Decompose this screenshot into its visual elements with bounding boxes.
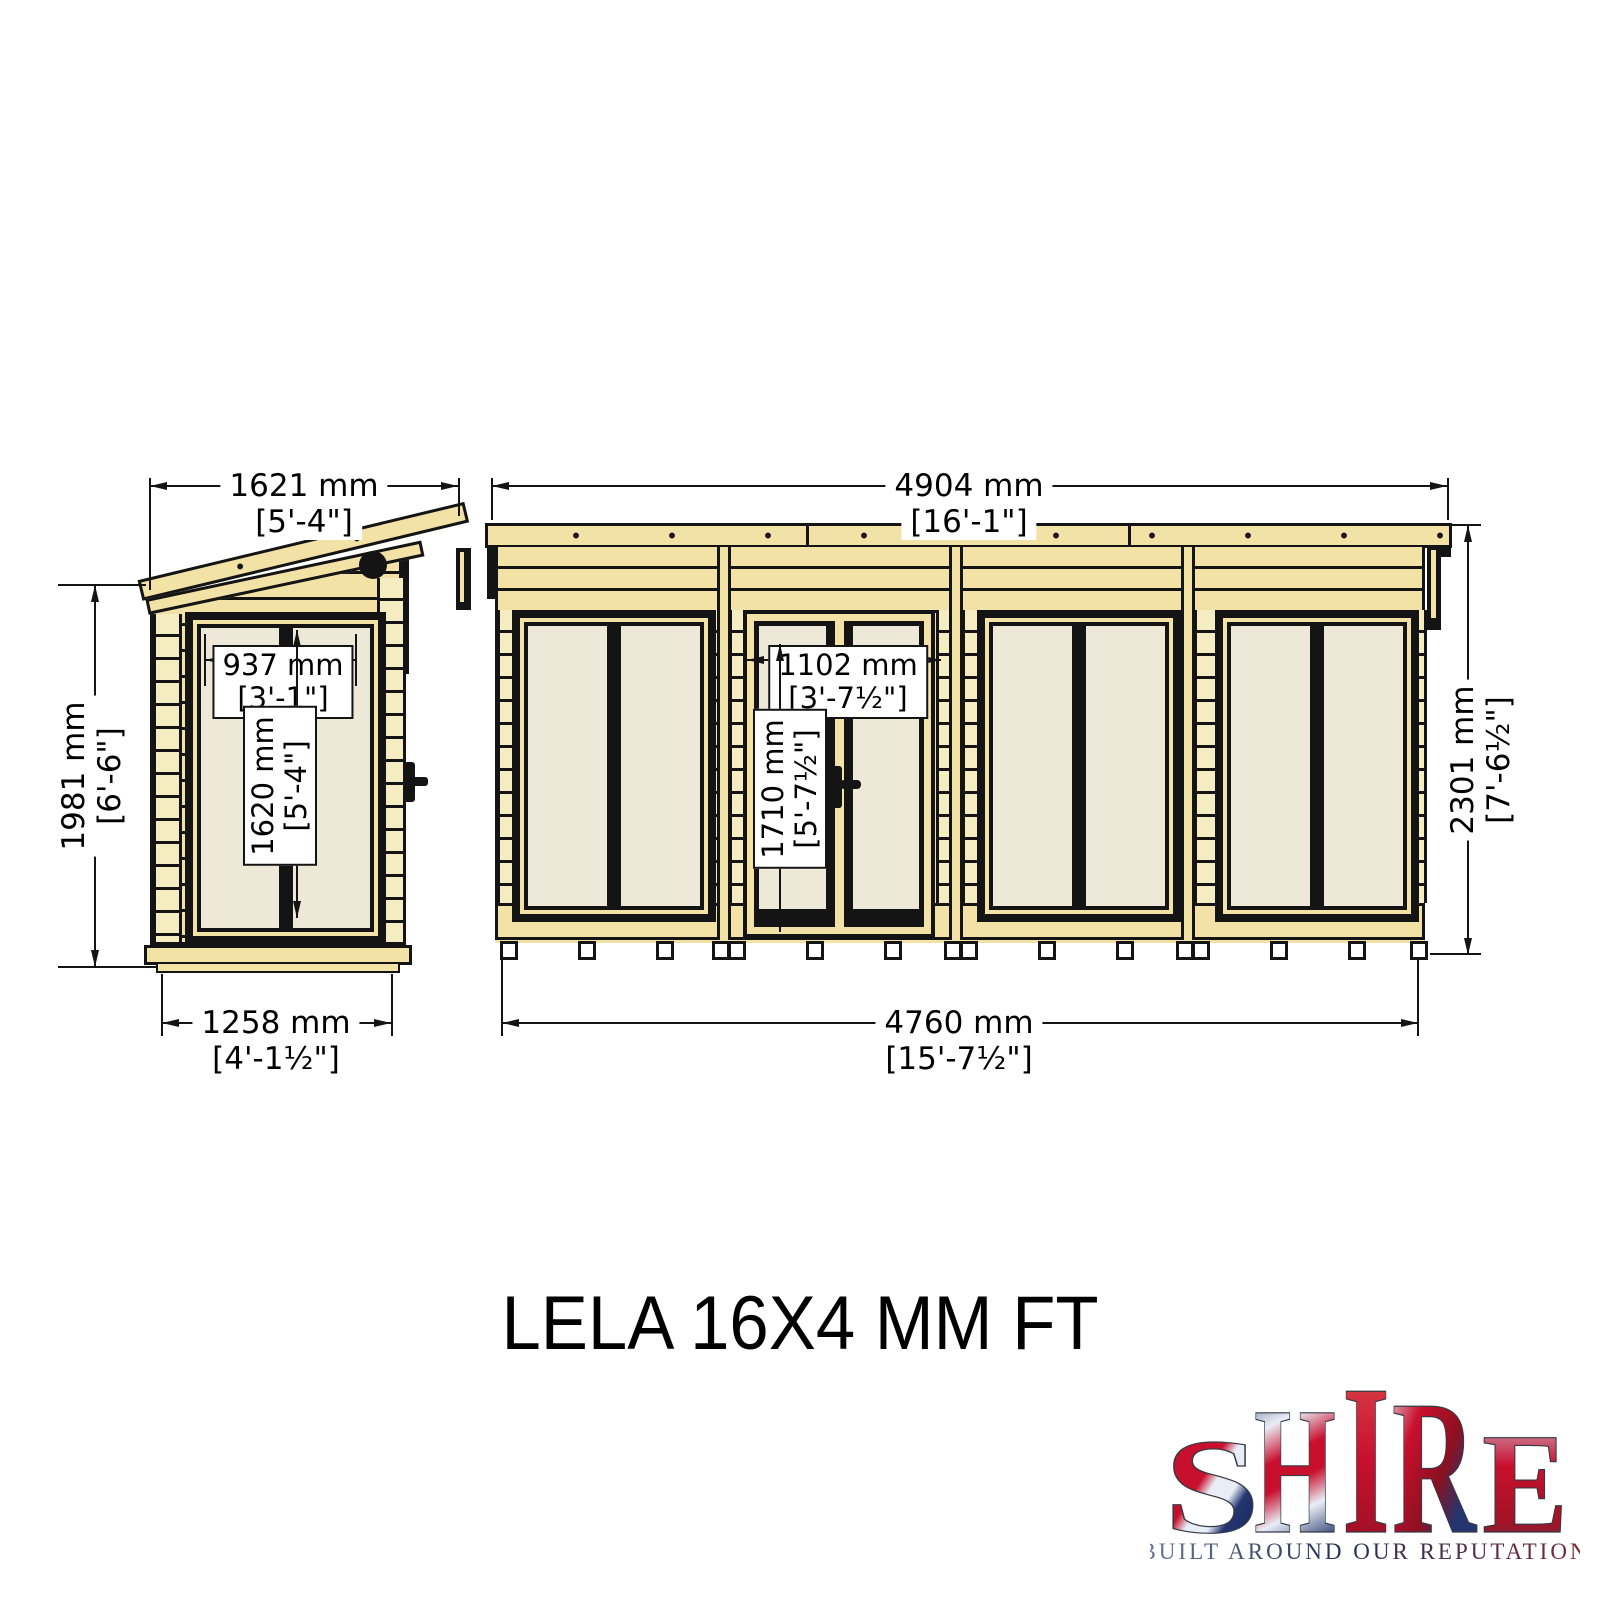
- dim-label-rot: 1981 mm [6'-6"]: [56, 695, 128, 856]
- dim-label: 1621 mm: [220, 468, 387, 504]
- shire-logo: S H I R E BUILT AROUND OUR REPUTATION: [1150, 1382, 1580, 1587]
- dim-label: 4760 mm: [875, 1005, 1042, 1041]
- floor-bearer: [1192, 941, 1210, 960]
- dim-label-ft: [4'-1½"]: [203, 1041, 349, 1077]
- floor-bearer: [1410, 941, 1428, 960]
- dim-label: 1258 mm: [192, 1005, 359, 1041]
- front-fascia-joint: [1128, 525, 1131, 546]
- front-window-3-sash: [1227, 622, 1407, 910]
- dim-label: 4904 mm: [885, 468, 1052, 504]
- dim-box-label: 1102 mm [3'-7½"]: [768, 645, 928, 719]
- window-mullion: [1072, 626, 1086, 906]
- front-window-1-sash: [524, 622, 704, 910]
- floor-bearer: [656, 941, 674, 960]
- floor-bearer: [578, 941, 596, 960]
- side-front-fascia-face: [460, 552, 464, 602]
- dim-label-rot: 2301 mm [7'-6½"]: [1445, 679, 1517, 840]
- door-handle-lever: [840, 780, 861, 789]
- front-window-2-sash: [989, 622, 1169, 910]
- drawing-title: LELA 16X4 MM FT: [56, 1280, 1544, 1367]
- front-divider: [1181, 547, 1195, 940]
- front-window-2: [977, 610, 1181, 922]
- side-door-handle-lever: [412, 777, 428, 786]
- floor-bearer: [1348, 941, 1366, 960]
- front-fascia-joint: [806, 525, 809, 546]
- technical-drawing: 1621 mm [5'-4"] 1981 mm [6'-6"] 937 mm […: [0, 0, 1600, 1600]
- side-cladding-column-left: [153, 614, 182, 942]
- dim-box-label-rot: 1710 mm [5'-7½"]: [753, 709, 827, 869]
- dim-label-ft: [5'-4"]: [246, 504, 362, 540]
- dim-box-label-rot: 1620 mm [5'-4"]: [243, 706, 317, 866]
- roof-bolt-icon: [359, 551, 387, 579]
- floor-bearer: [884, 941, 902, 960]
- window-mullion: [607, 626, 621, 906]
- floor-bearer: [728, 941, 746, 960]
- dim-label-ft: [15'-7½"]: [876, 1041, 1041, 1077]
- dim-label-ft: [16'-1"]: [901, 504, 1036, 540]
- floor-bearer: [960, 941, 978, 960]
- side-floor-board: [156, 962, 400, 973]
- floor-bearer: [1116, 941, 1134, 960]
- front-window-3: [1215, 610, 1419, 922]
- roof-overhang-right-face: [1431, 550, 1436, 618]
- window-mullion: [1310, 626, 1324, 906]
- logo-tagline: BUILT AROUND OUR REPUTATION: [1150, 1539, 1580, 1564]
- floor-bearer: [1038, 941, 1056, 960]
- floor-bearer: [1270, 941, 1288, 960]
- front-divider: [717, 547, 731, 940]
- front-divider: [949, 547, 963, 940]
- front-window-1: [512, 610, 716, 922]
- floor-bearer: [806, 941, 824, 960]
